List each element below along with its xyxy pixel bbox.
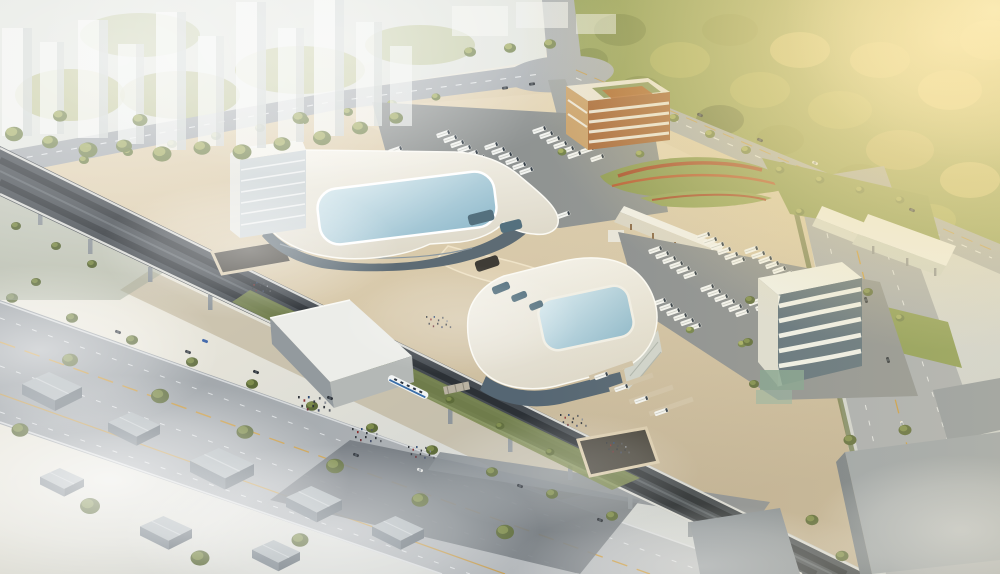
aerial-rendering-transit-hub [0,0,1000,574]
fog-and-light [0,0,1000,574]
rendering-canvas [0,0,1000,574]
